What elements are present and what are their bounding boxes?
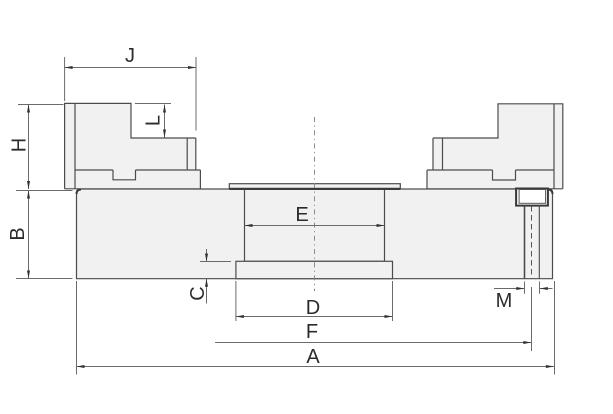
svg-text:E: E: [295, 204, 308, 226]
svg-text:J: J: [125, 45, 135, 67]
svg-text:F: F: [306, 321, 318, 343]
svg-text:D: D: [306, 297, 320, 319]
svg-text:L: L: [143, 115, 165, 126]
svg-text:A: A: [306, 346, 320, 368]
svg-text:C: C: [187, 286, 209, 300]
svg-text:H: H: [9, 138, 31, 152]
svg-text:B: B: [7, 227, 29, 240]
svg-text:M: M: [496, 290, 513, 312]
